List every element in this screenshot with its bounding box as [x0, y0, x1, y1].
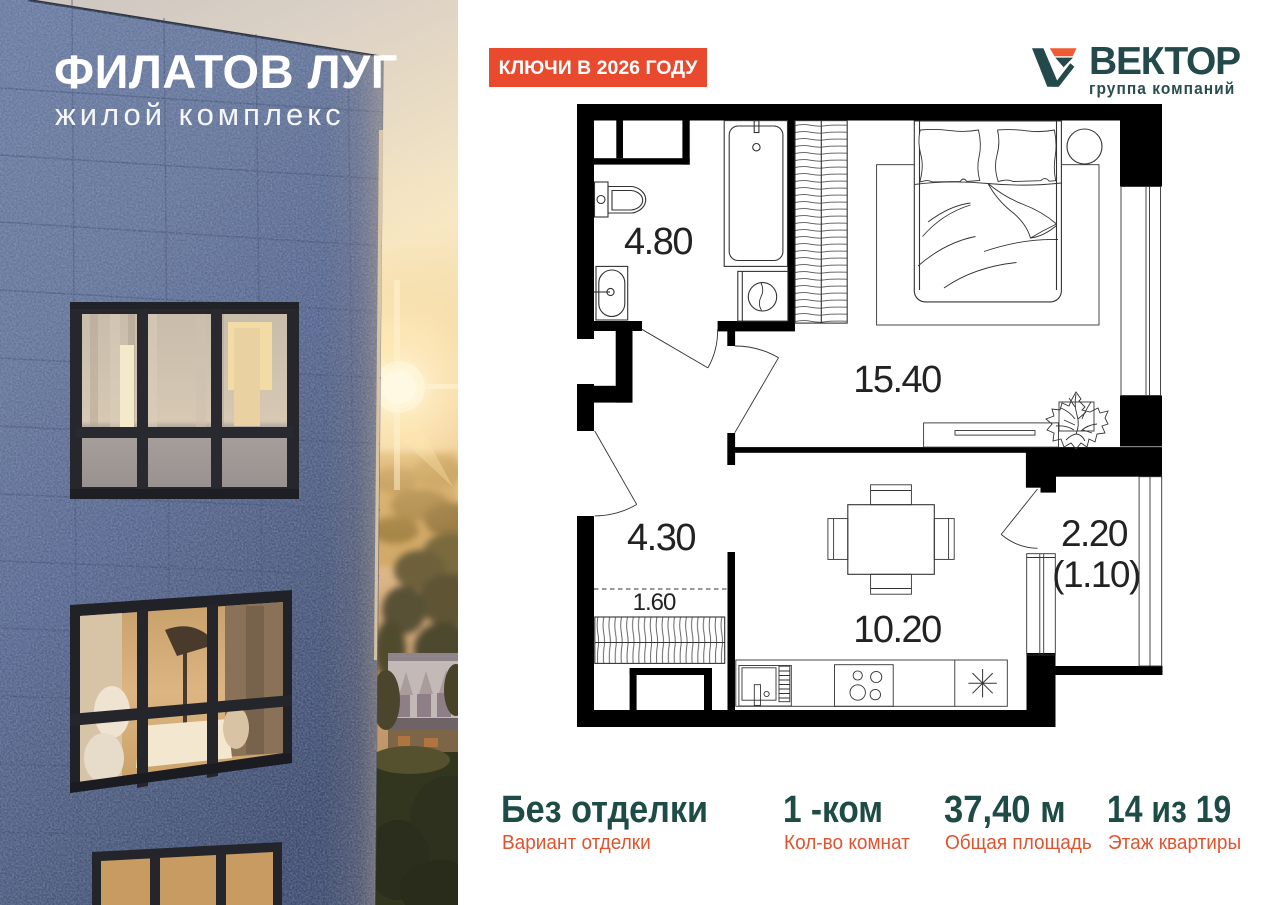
svg-text:1.60: 1.60 — [633, 589, 676, 616]
svg-text:2.20: 2.20 — [1061, 513, 1128, 554]
svg-text:4.30: 4.30 — [627, 517, 695, 559]
svg-text:4.80: 4.80 — [624, 221, 692, 263]
svg-text:10.20: 10.20 — [853, 609, 941, 651]
svg-text:15.40: 15.40 — [853, 359, 941, 401]
svg-text:(1.10): (1.10) — [1052, 554, 1140, 595]
